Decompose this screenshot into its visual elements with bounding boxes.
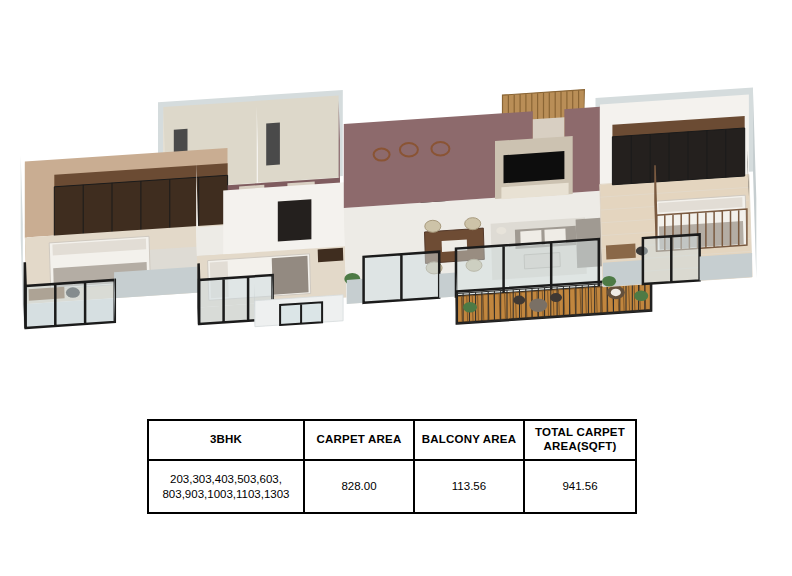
living-front-window: [364, 252, 440, 303]
deck-chair-2: [550, 293, 562, 302]
shell-balcony-left-wall: [23, 262, 24, 329]
floor-lamp: [496, 227, 506, 235]
dining-chair-1: [425, 220, 441, 232]
kids-front-window: [643, 234, 700, 284]
bedroom2-dresser: [318, 248, 344, 263]
deck-rattan-cushion: [611, 289, 621, 297]
kids-plant: [602, 276, 616, 287]
shell-right-end-wall: [753, 92, 756, 278]
deck-table: [529, 298, 547, 312]
table-header-balcony-area: BALCONY AREA: [413, 421, 523, 461]
table-cell-balcony-area: 113.56: [413, 461, 523, 512]
kids-wardrobe: [612, 128, 744, 185]
table-cell-total-carpet-area: 941.56: [523, 461, 635, 512]
floorplan-render: [0, 0, 792, 412]
utility-window: [280, 302, 322, 325]
table-header-carpet-area: CARPET AREA: [303, 421, 413, 461]
master-balcony-rail-front: [26, 280, 115, 328]
table-header-total-carpet-area: TOTAL CARPET AREA(SQFT): [523, 421, 635, 461]
bedroom2-blanket: [272, 256, 309, 295]
shell-left-end-wall: [21, 156, 23, 306]
tv-screen: [504, 151, 565, 183]
living-front-parapet-1: [347, 279, 364, 304]
shower-2: [266, 123, 280, 166]
corridor-wall-shelves: [278, 199, 312, 241]
living-front-parapet-2: [439, 273, 456, 298]
table-cell-unit-numbers: 203,303,403,503,603, 803,903,1003,1103,1…: [149, 461, 303, 512]
deck-chair-1: [513, 296, 525, 305]
deck-plant-left: [463, 302, 477, 313]
table-header-unit-type: 3BHK: [149, 421, 303, 461]
kids-desk: [606, 244, 636, 260]
dining-chair-2: [465, 218, 481, 230]
kids-front-parapet-right: [700, 253, 753, 281]
deck-plant-right: [634, 291, 648, 302]
table-cell-carpet-area: 828.00: [303, 461, 413, 512]
area-specification-table: 3BHK CARPET AREA BALCONY AREA TOTAL CARP…: [147, 419, 637, 514]
